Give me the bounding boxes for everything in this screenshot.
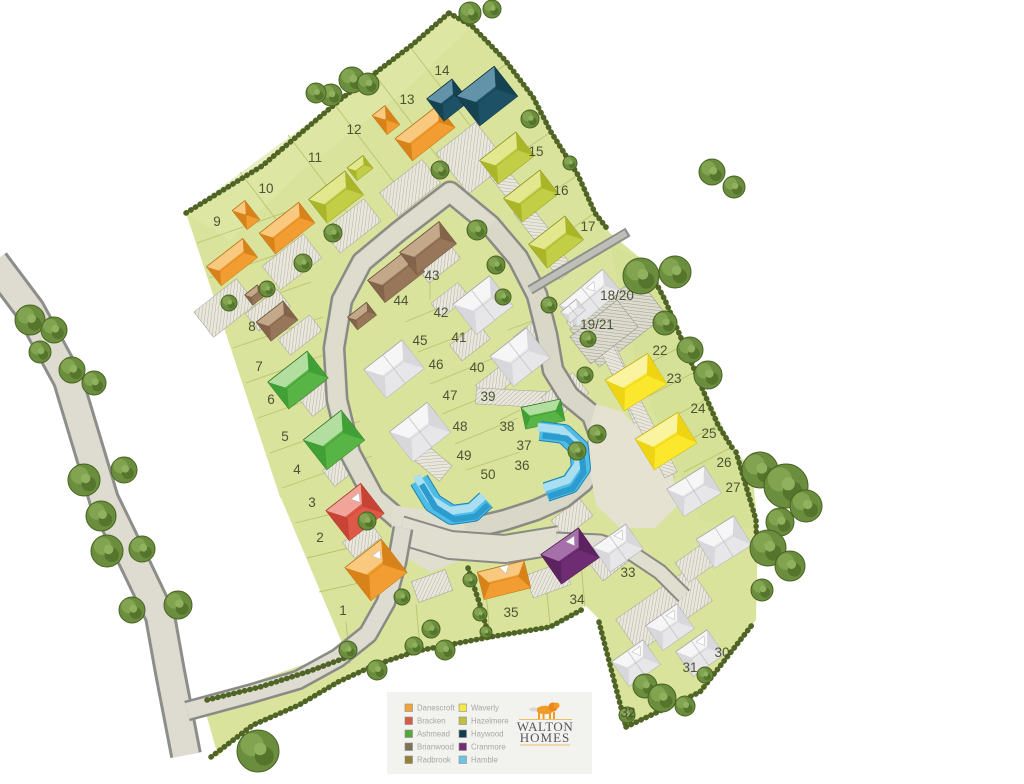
svg-text:42: 42 xyxy=(433,305,448,320)
svg-text:Danescroft: Danescroft xyxy=(417,704,456,713)
svg-text:8: 8 xyxy=(248,319,256,334)
svg-text:38: 38 xyxy=(499,419,514,434)
svg-text:18/20: 18/20 xyxy=(600,288,634,303)
svg-text:Bracken: Bracken xyxy=(417,717,446,726)
svg-text:12: 12 xyxy=(346,122,361,137)
svg-text:9: 9 xyxy=(213,214,221,229)
svg-text:15: 15 xyxy=(528,144,543,159)
svg-text:17: 17 xyxy=(580,219,595,234)
svg-text:45: 45 xyxy=(412,333,427,348)
svg-text:36: 36 xyxy=(514,458,529,473)
svg-text:48: 48 xyxy=(452,419,467,434)
svg-text:31: 31 xyxy=(682,660,697,675)
svg-text:39: 39 xyxy=(480,389,495,404)
svg-text:4: 4 xyxy=(293,462,301,477)
svg-text:46: 46 xyxy=(428,357,443,372)
svg-text:Haywood: Haywood xyxy=(471,730,504,739)
svg-text:22: 22 xyxy=(652,343,667,358)
svg-text:32: 32 xyxy=(620,705,635,720)
svg-text:47: 47 xyxy=(442,388,457,403)
svg-text:3: 3 xyxy=(308,495,316,510)
svg-text:27: 27 xyxy=(725,480,740,495)
svg-text:2: 2 xyxy=(316,530,324,545)
svg-text:19/21: 19/21 xyxy=(580,317,614,332)
svg-text:Waverly: Waverly xyxy=(471,704,499,713)
svg-text:23: 23 xyxy=(666,371,681,386)
svg-text:50: 50 xyxy=(480,467,495,482)
svg-text:Hazelmere: Hazelmere xyxy=(471,717,509,726)
svg-text:13: 13 xyxy=(399,92,414,107)
svg-text:33: 33 xyxy=(620,565,635,580)
svg-text:7: 7 xyxy=(255,359,263,374)
svg-text:11: 11 xyxy=(308,150,322,165)
svg-text:5: 5 xyxy=(281,429,289,444)
svg-text:14: 14 xyxy=(434,63,450,78)
svg-text:Cranmore: Cranmore xyxy=(471,743,506,752)
svg-text:40: 40 xyxy=(469,360,484,375)
svg-text:41: 41 xyxy=(451,330,466,345)
svg-text:44: 44 xyxy=(393,293,409,308)
svg-text:HOMES: HOMES xyxy=(520,730,571,745)
svg-text:10: 10 xyxy=(258,181,273,196)
svg-text:49: 49 xyxy=(456,448,471,463)
svg-text:26: 26 xyxy=(716,455,731,470)
svg-text:30: 30 xyxy=(714,645,729,660)
svg-text:Radbrook: Radbrook xyxy=(417,756,451,765)
svg-text:25: 25 xyxy=(701,426,716,441)
svg-text:16: 16 xyxy=(553,183,568,198)
svg-text:34: 34 xyxy=(569,592,585,607)
svg-text:37: 37 xyxy=(516,438,531,453)
svg-text:6: 6 xyxy=(267,392,275,407)
svg-text:24: 24 xyxy=(690,401,706,416)
svg-text:1: 1 xyxy=(339,603,347,618)
svg-text:Hamble: Hamble xyxy=(471,756,498,765)
svg-text:43: 43 xyxy=(424,268,439,283)
svg-text:35: 35 xyxy=(503,605,518,620)
svg-text:Brianwood: Brianwood xyxy=(417,743,454,752)
svg-text:Ashmead: Ashmead xyxy=(417,730,450,739)
